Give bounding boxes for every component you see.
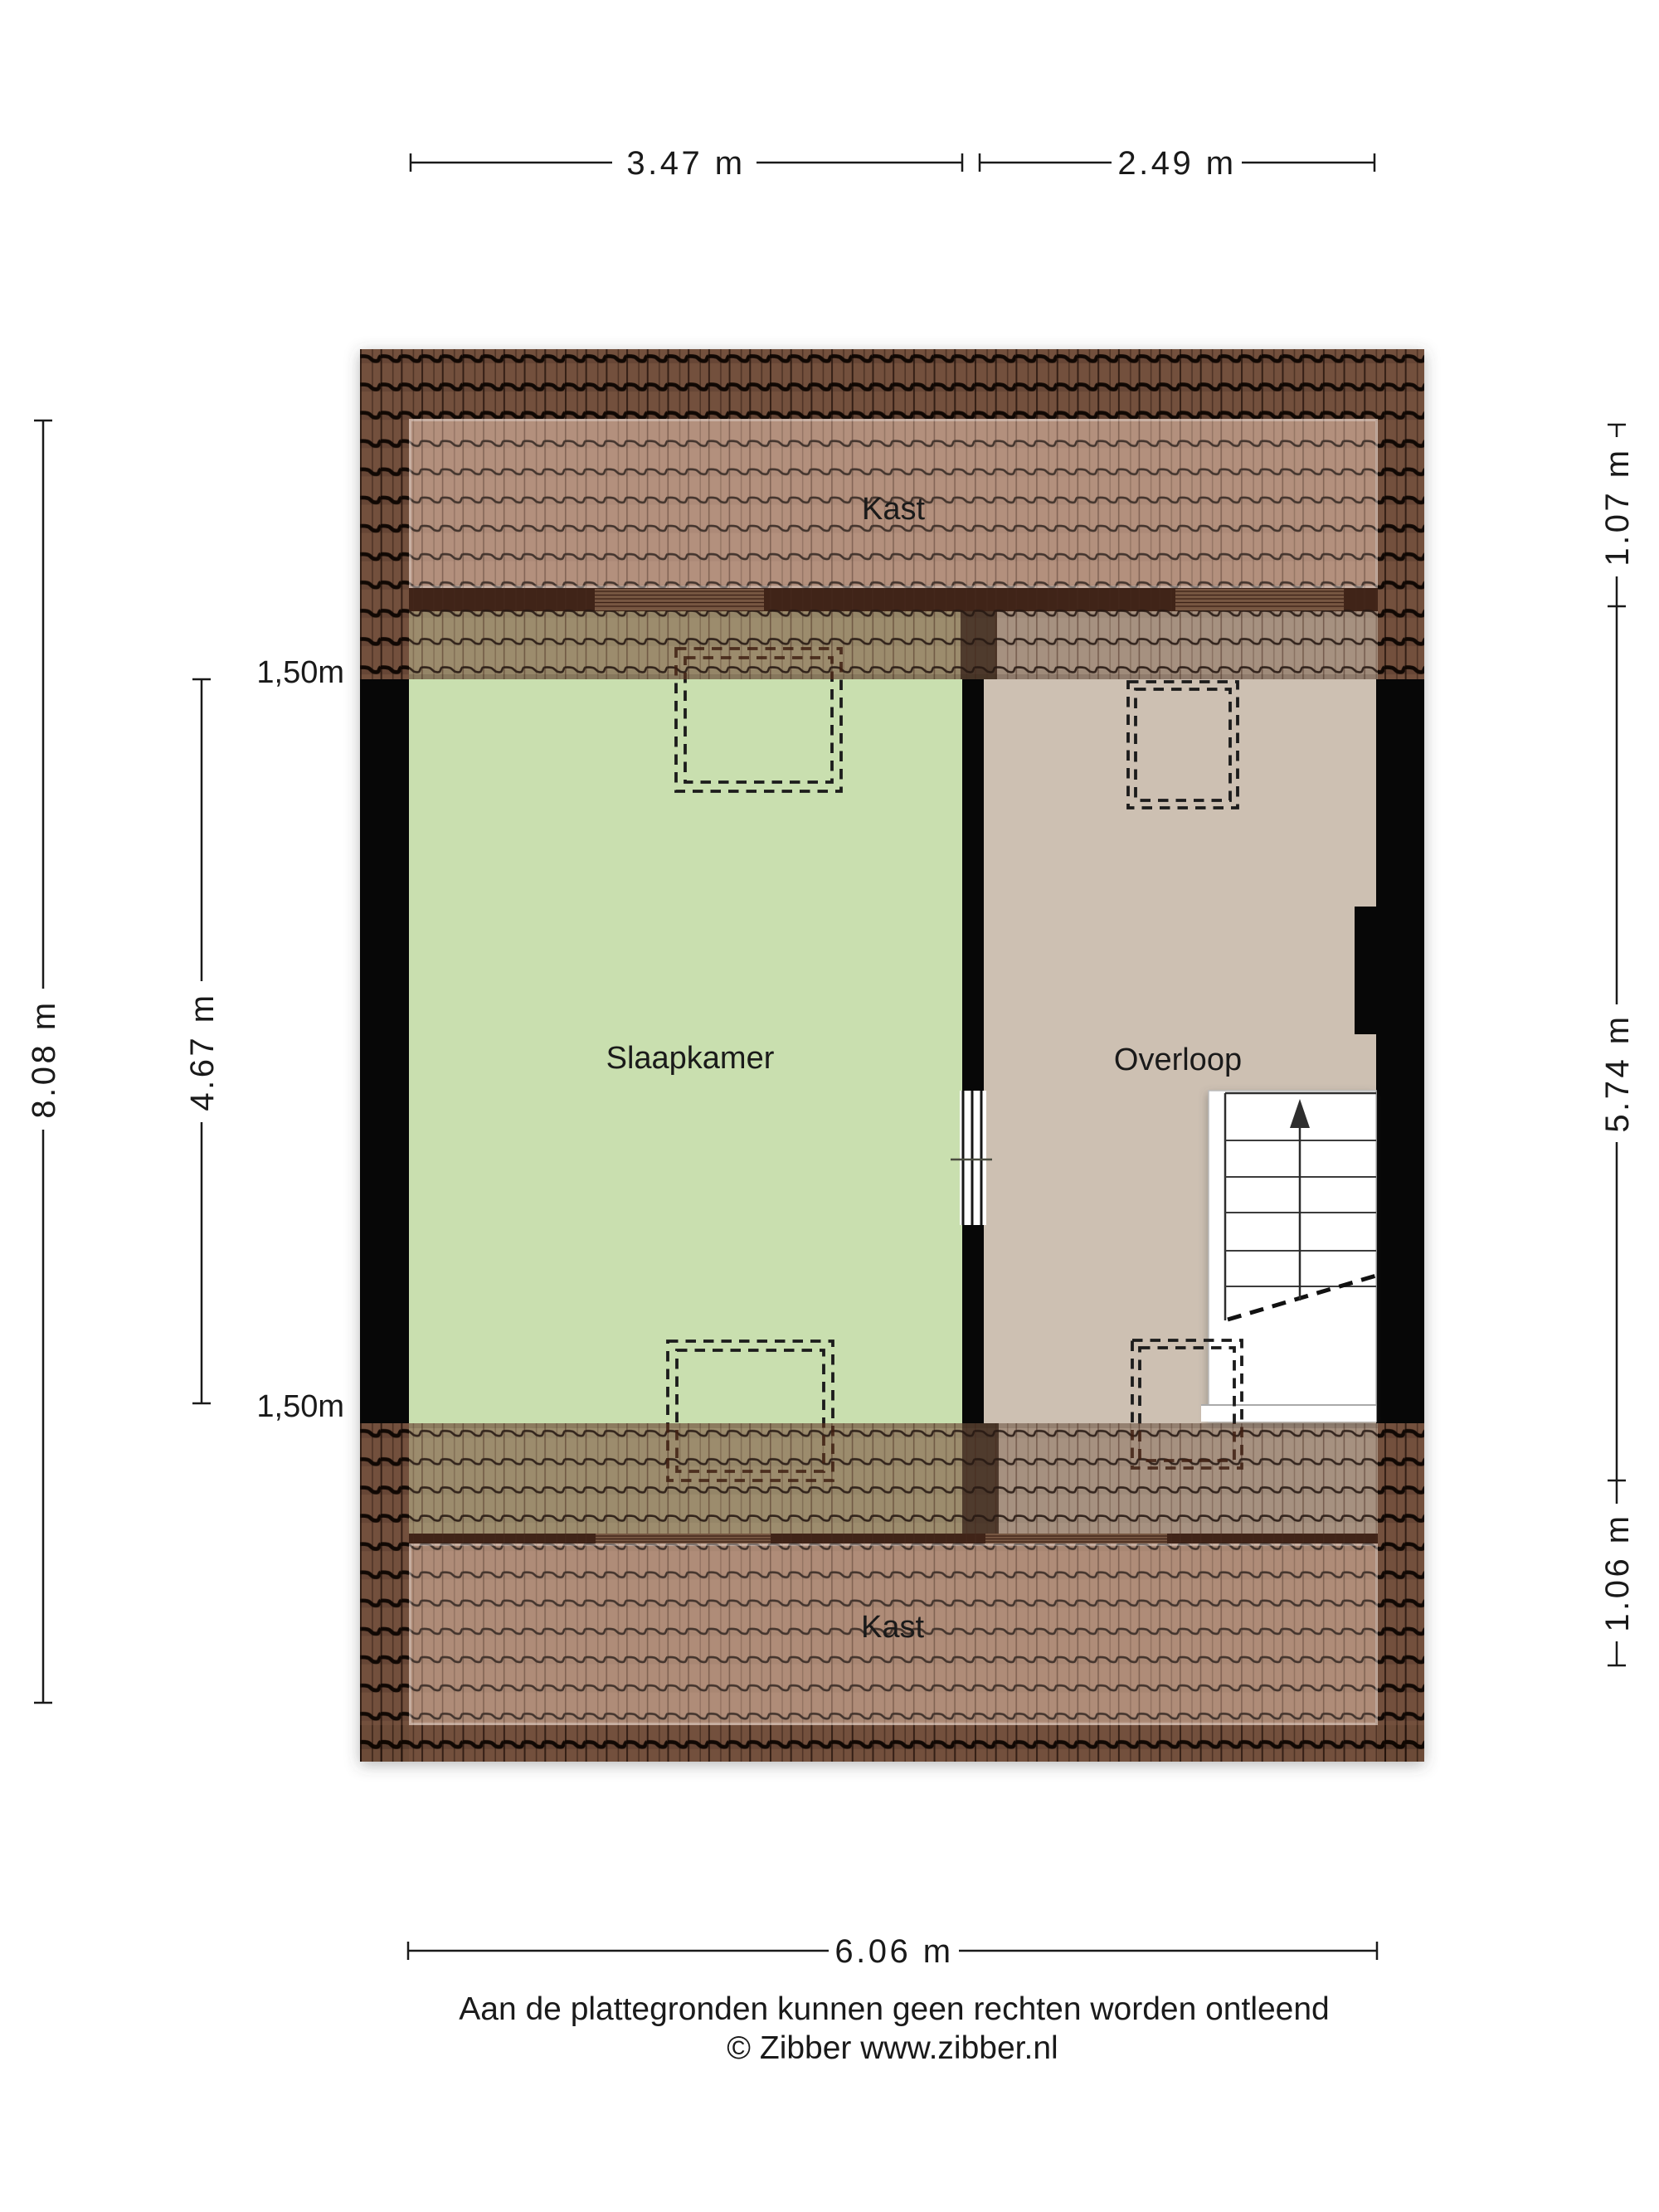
svg-text:2.49 m: 2.49 m [1117,145,1236,182]
svg-text:1,50m: 1,50m [256,1389,344,1424]
svg-text:6.06 m: 6.06 m [834,1933,953,1970]
svg-text:Overloop: Overloop [1114,1043,1242,1077]
svg-text:4.67 m: 4.67 m [184,992,221,1111]
svg-text:Kast: Kast [862,492,925,527]
svg-text:1,50m: 1,50m [256,655,344,690]
svg-text:8.08 m: 8.08 m [26,999,62,1118]
svg-text:1.07 m: 1.07 m [1599,447,1636,566]
svg-text:1.06 m: 1.06 m [1599,1513,1636,1631]
svg-text:Slaapkamer: Slaapkamer [606,1041,775,1076]
svg-text:3.47 m: 3.47 m [626,145,745,182]
svg-text:5.74 m: 5.74 m [1599,1014,1636,1132]
svg-text:Kast: Kast [861,1610,924,1645]
svg-text:Aan de plattegronden kunnen ge: Aan de plattegronden kunnen geen rechten… [459,1991,1330,2027]
svg-text:© Zibber www.zibber.nl: © Zibber www.zibber.nl [727,2030,1058,2066]
